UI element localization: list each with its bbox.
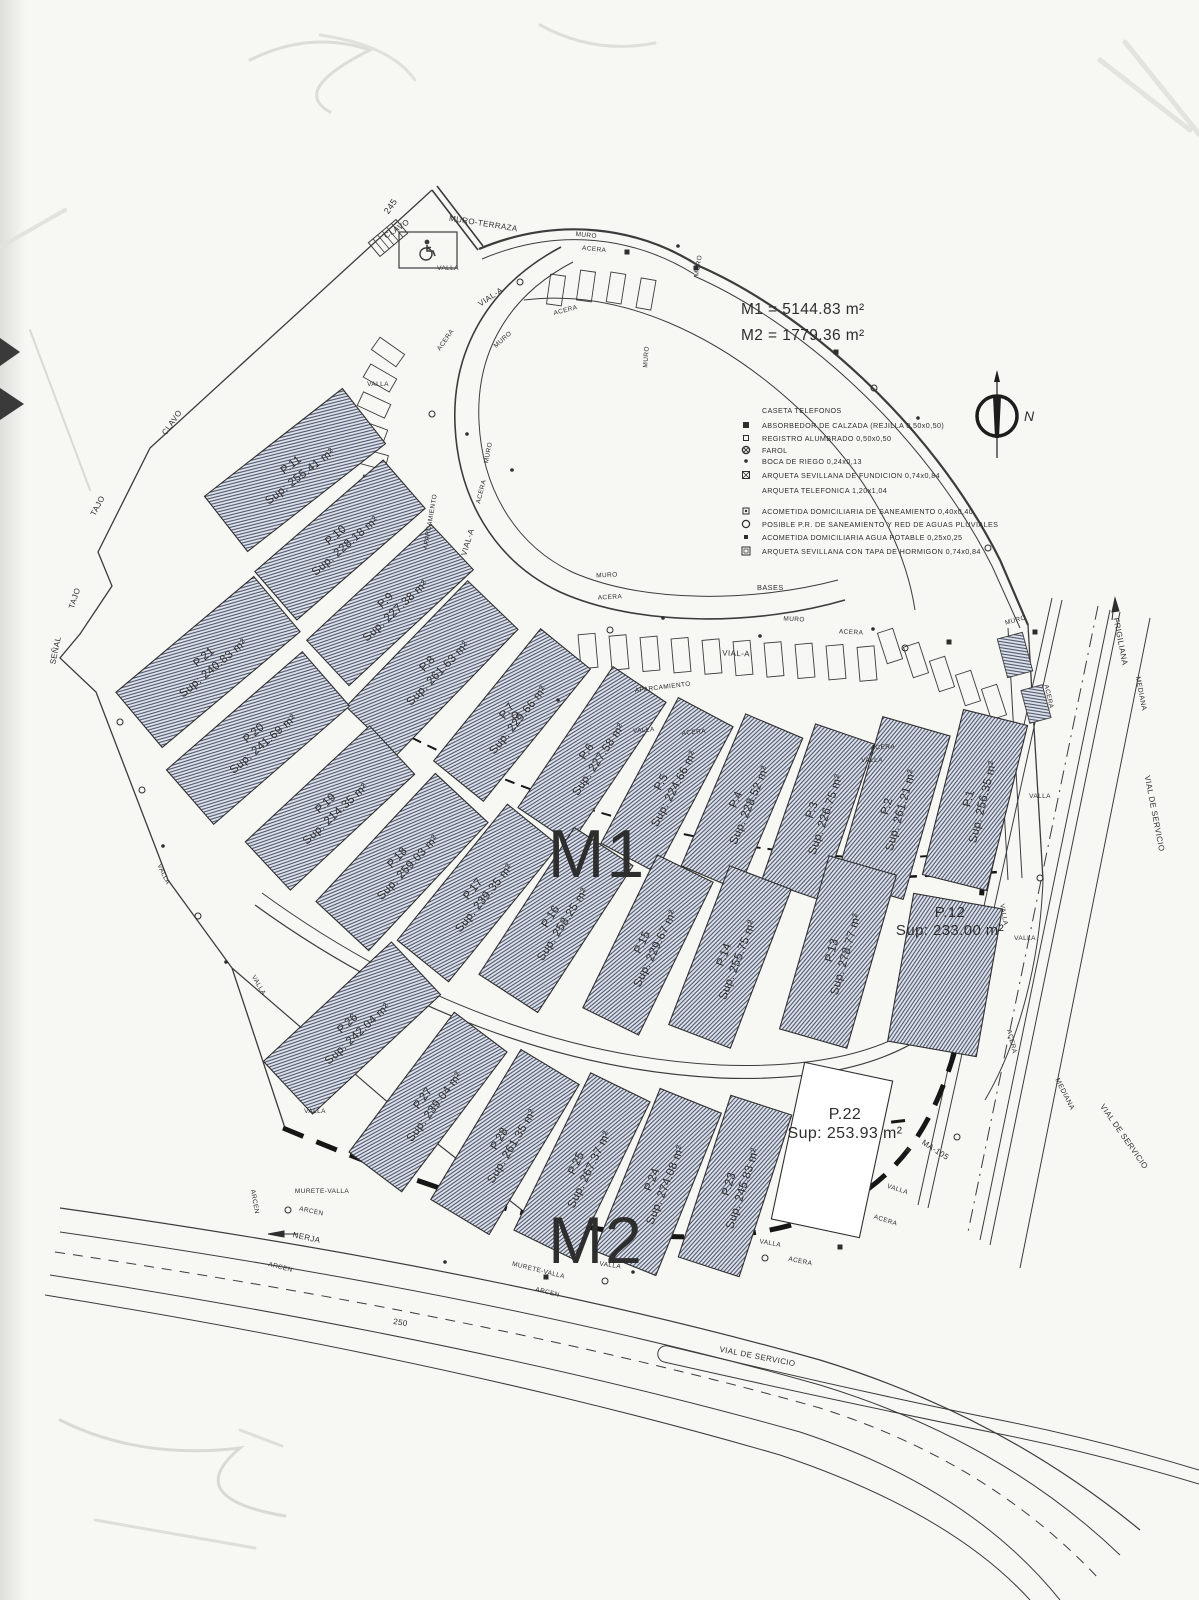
legend-row: POSIBLE P.R. DE SANEAMIENTO Y RED DE AGU… [742, 520, 998, 529]
street-label: VIAL DE SERVICIO [719, 1345, 796, 1369]
street-label: VALLA [1029, 793, 1051, 800]
street-label: ACERA [871, 743, 896, 751]
street-label: VIAL DE SERVICIO [1098, 1102, 1150, 1170]
roads [45, 229, 1199, 1600]
street-label: ACERA [788, 1256, 814, 1268]
street-label: VALLA [156, 863, 172, 886]
street-label: ACERA [839, 628, 864, 636]
street-label: MEDIANA [1053, 1077, 1075, 1111]
street-label: ACERA [553, 304, 579, 317]
street-label: ACERA [598, 593, 623, 601]
area-totals: M1 = 5144.83 m² M2 = 1779.36 m² [741, 301, 865, 344]
street-label: MURO-TERRAZA [448, 214, 518, 234]
north-label: N [1024, 408, 1035, 424]
street-label: VALLA [633, 726, 656, 735]
street-label: 250 [392, 1317, 408, 1328]
street-label: VALLA [886, 1183, 909, 1196]
legend-row-label: CASETA TELEFONOS [762, 406, 842, 415]
legend-row-label: BOCA DE RIEGO 0,24x0,13 [762, 457, 862, 466]
street-label: VALLA [304, 1108, 326, 1115]
legend-row-label: FAROL [762, 446, 788, 455]
street-label: ARCEN [249, 1189, 260, 1215]
street-label: MA-105 [920, 1138, 951, 1162]
street-label: VALLA [367, 381, 389, 388]
north-arrow-icon: N [977, 370, 1035, 458]
legend-row-label: POSIBLE P.R. DE SANEAMIENTO Y RED DE AGU… [762, 520, 998, 529]
street-label: 245 [382, 197, 399, 216]
legend-row: FAROL [742, 446, 787, 455]
scanned-site-plan: N M1 = 5144.83 m² M2 = 1779.36 m² P.1Sup… [0, 0, 1199, 1600]
street-label: ARCEN [535, 1286, 561, 1299]
street-label: ACERA [475, 479, 488, 505]
street-label: ACERA [582, 245, 607, 255]
street-label: SEÑAL [48, 636, 63, 666]
legend-row-label: ARQUETA SEVILLANA DE FUNDICION 0,74x0,84 [762, 471, 940, 480]
legend-row-label: REGISTRO ALUMBRADO 0,50x0,50 [762, 434, 891, 443]
legend-row: REGISTRO ALUMBRADO 0,50x0,50 [744, 434, 892, 443]
street-label: TAJO [89, 494, 107, 517]
street-label: VALLA [861, 757, 883, 764]
parcel-P.22 [771, 1062, 892, 1237]
legend-row-label: ARQUETA SEVILLANA CON TAPA DE HORMIGON 0… [762, 547, 981, 556]
street-label: ARCEN [268, 1261, 294, 1274]
legend-row-label: ARQUETA TELEFONICA 1,20x1,04 [762, 486, 887, 495]
street-label: MURO [493, 330, 514, 350]
street-label: VIAL DE SERVICIO [1143, 775, 1167, 852]
zone-label-m1: M1 [548, 816, 646, 892]
wheelchair-icon [420, 240, 435, 260]
m1-total: M1 = 5144.83 m² [741, 301, 865, 318]
street-label: MEDIANA [1134, 676, 1147, 711]
site-plan-canvas: N M1 = 5144.83 m² M2 = 1779.36 m² P.1Sup… [0, 0, 1199, 1600]
legend-row: CASETA TELEFONOS [762, 406, 842, 415]
handicap-parking [399, 232, 457, 268]
legend-row-label: ACOMETIDA DOMICILIARIA DE SANEAMIENTO 0,… [762, 507, 973, 516]
street-label: MURO [1004, 614, 1027, 626]
legend-row: ACOMETIDA DOMICILIARIA AGUA POTABLE 0,25… [744, 533, 962, 542]
legend-footer: BASES [757, 583, 784, 592]
street-label: CLAVO [160, 408, 184, 437]
legend-row: ACOMETIDA DOMICILIARIA DE SANEAMIENTO 0,… [743, 507, 973, 516]
street-label: ACERA [1005, 1029, 1018, 1055]
street-label: MURO [483, 442, 494, 464]
street-label: APARCAMIENTO [634, 681, 691, 695]
street-label: ARCEN [298, 1206, 324, 1218]
legend-row: BOCA DE RIEGO 0,24x0,13 [744, 457, 862, 466]
street-label: VALLA [1014, 935, 1036, 942]
street-label: VIAL-A [459, 527, 476, 556]
zone-label-m2: M2 [548, 1203, 644, 1277]
legend-row: ABSORBEDOR DE CALZADA (REJILLA 0,50x0,50… [743, 421, 944, 430]
street-label: ACERA [436, 328, 456, 352]
street-label: TAJO [67, 587, 82, 610]
zone-labels: M1M2 [548, 816, 646, 1277]
street-label: MURO [642, 346, 650, 368]
street-label: VIAL-A [722, 649, 750, 659]
legend-row: ARQUETA TELEFONICA 1,20x1,04 [762, 486, 887, 495]
street-label: ACERA [873, 1213, 899, 1227]
street-label: VALLA [759, 1238, 782, 1249]
street-label: MURO [596, 571, 618, 579]
street-label: NERJA [292, 1230, 322, 1245]
street-label: MURO [783, 615, 805, 623]
m2-total: M2 = 1779.36 m² [741, 327, 865, 344]
legend-row-label: ACOMETIDA DOMICILIARIA AGUA POTABLE 0,25… [762, 533, 962, 542]
legend-row: ARQUETA SEVILLANA DE FUNDICION 0,74x0,84 [743, 471, 941, 480]
street-label: MURO [693, 255, 704, 277]
street-label: MURETE-VALLA [295, 1188, 349, 1195]
legend-row-label: ABSORBEDOR DE CALZADA (REJILLA 0,50x0,50… [762, 421, 944, 430]
street-label: MURO [575, 231, 597, 240]
legend: BASES CASETA TELEFONOSABSORBEDOR DE CALZ… [742, 406, 998, 592]
street-label: VALLA [437, 265, 459, 272]
legend-row: ARQUETA SEVILLANA CON TAPA DE HORMIGON 0… [742, 547, 981, 556]
